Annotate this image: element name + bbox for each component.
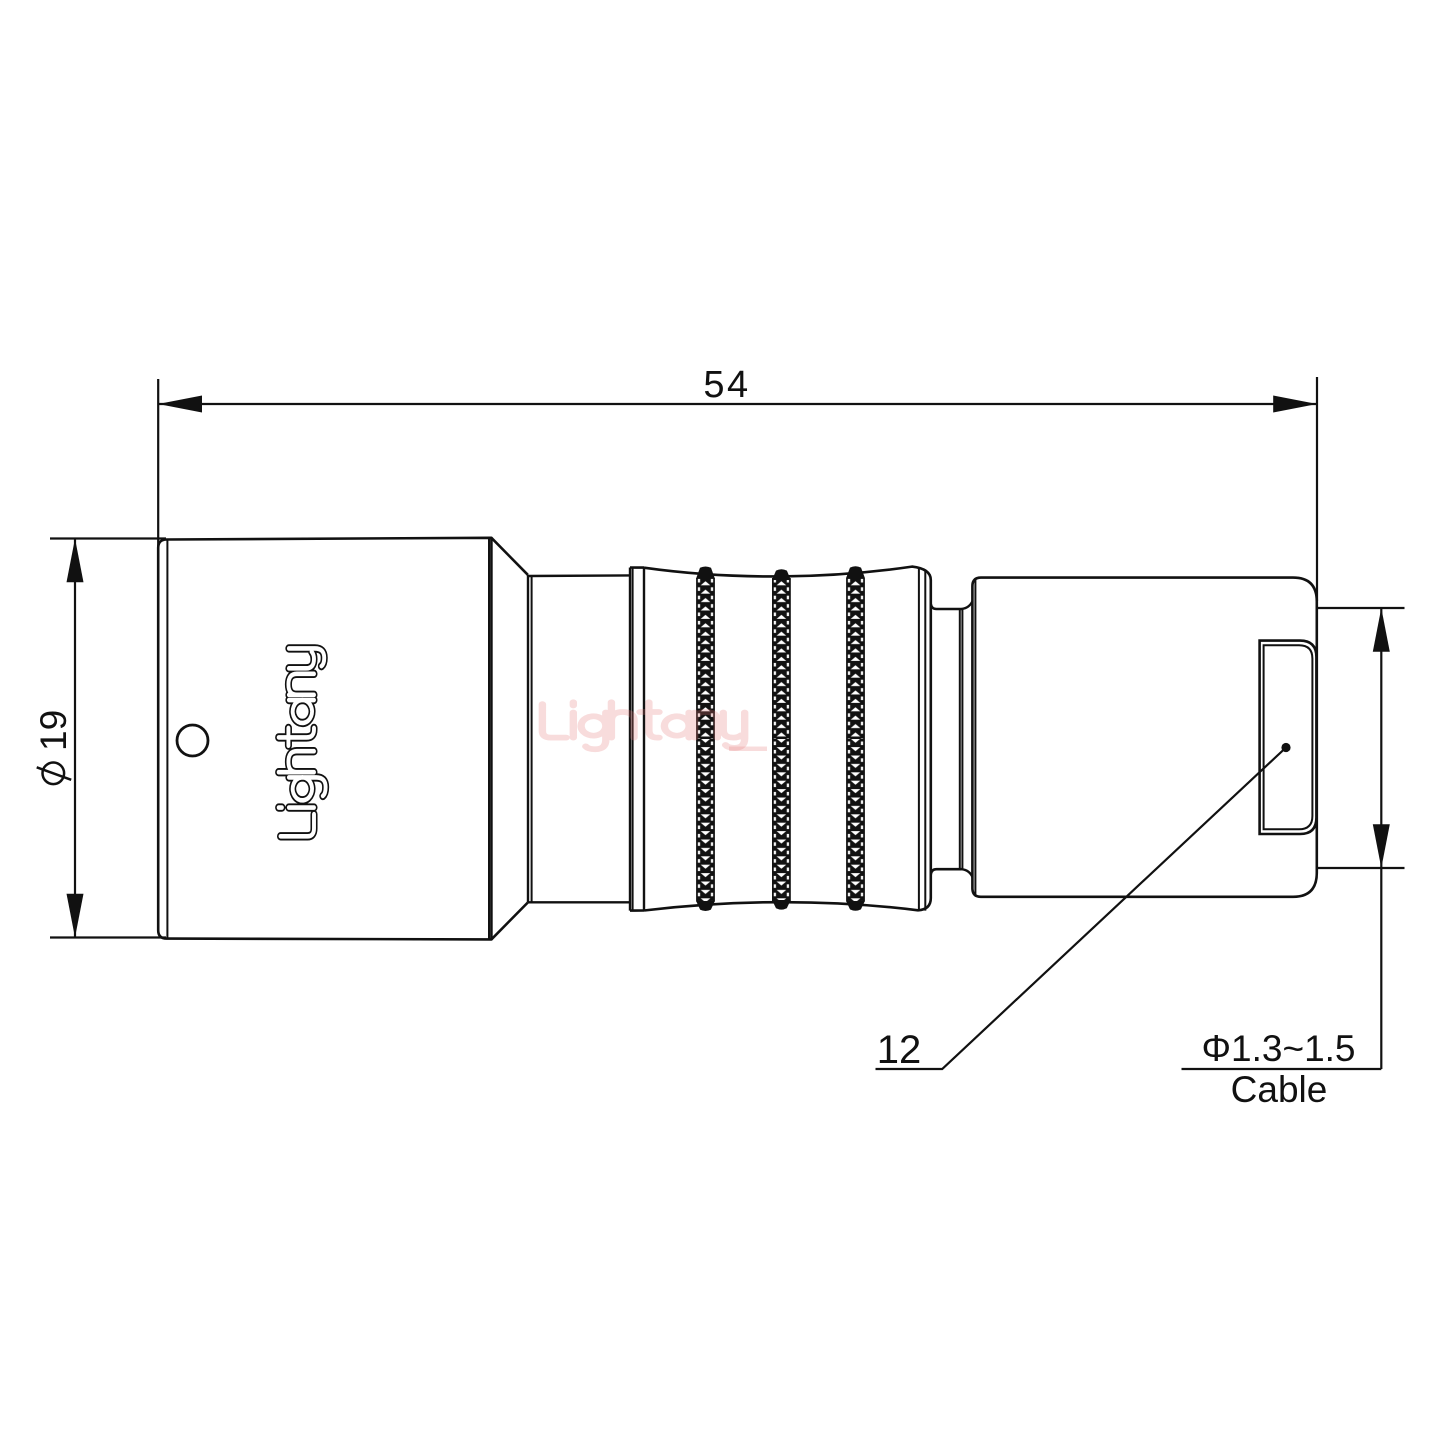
svg-text:12: 12 [877,1028,922,1072]
svg-text:19: 19 [33,710,74,751]
svg-text:Φ1.3~1.5: Φ1.3~1.5 [1202,1028,1356,1069]
svg-text:54: 54 [703,364,750,406]
svg-text:Cable: Cable [1231,1069,1328,1110]
